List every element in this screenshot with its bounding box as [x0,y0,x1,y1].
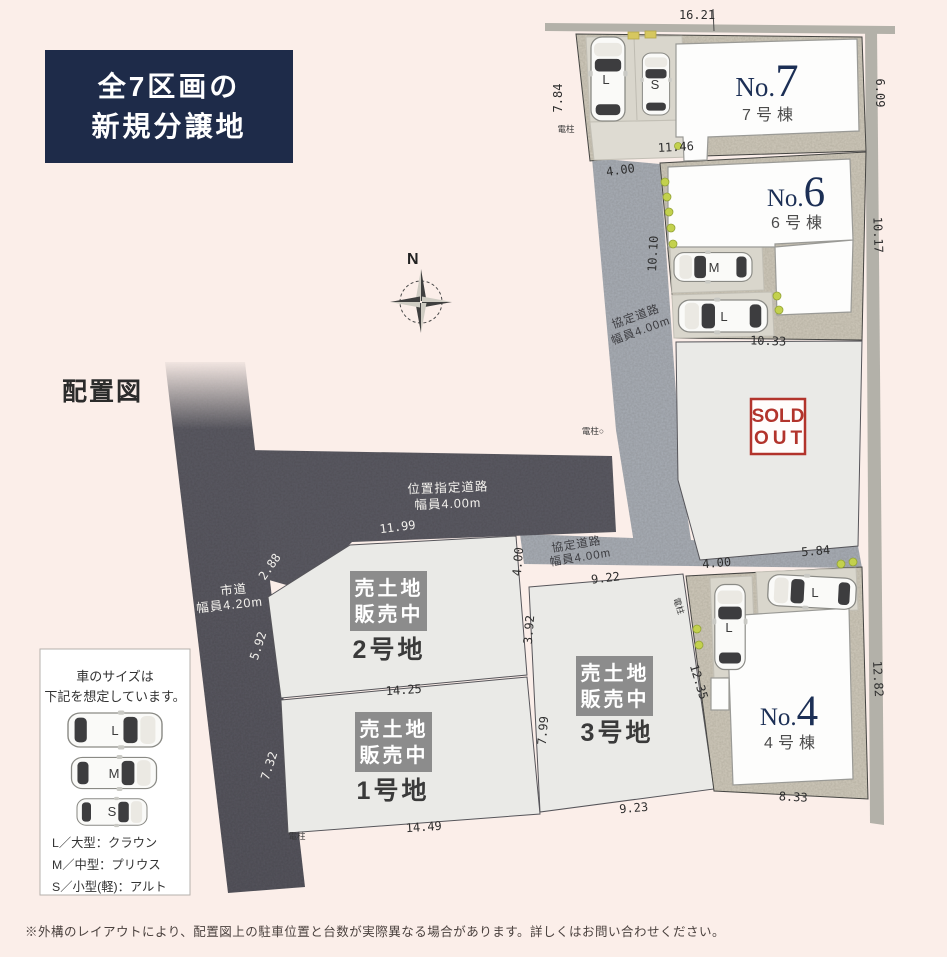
dim-14-25: 14.25 [385,682,422,698]
legend-car-s-label: S [108,804,117,819]
dim-9-23: 9.23 [619,800,649,816]
dim-16-21: 16.21 [679,8,715,22]
lot3-badge-line1: 売土地 [581,662,650,685]
road-ichishitei-name: 位置指定道路 [407,479,488,497]
dim-3-92: 3.92 [521,615,537,645]
pole-center: 電柱○ [582,426,604,436]
disclaimer-text: ※外構のレイアウトにより、配置図上の駐車位置と台数が実際異なる場合があります。詳… [25,921,725,940]
title-line2: 新規分譲地 [45,107,293,147]
building-4 [727,608,853,785]
sold-out-line1: SOLD [752,406,805,427]
dim-7-99: 7.99 [535,716,551,746]
title-banner: 全7区画の 新規分譲地 [45,50,293,163]
road-ichishitei-width: 幅員4.00m [414,495,481,512]
house-no4-name: 4号棟 [764,734,820,752]
dim-4-00-lot2: 4.00 [510,547,526,577]
house-no6-name: 6号棟 [771,214,827,232]
lot2-label: 2号地 [353,636,426,664]
car-label: L [725,620,732,635]
legend-row-l: L／大型：クラウン [52,836,157,850]
lot2-badge-line2: 販売中 [355,602,424,626]
dim-11-46: 11.46 [657,139,694,155]
car-label: S [651,77,660,92]
car-size-legend: 車のサイズは 下記を想定しています。 L M S L／大型：クラウン M／中型：… [40,649,190,895]
dim-4-00-sold: 4.00 [702,555,732,571]
compass: N [390,251,452,333]
pole-lot7: 電柱 [557,124,575,134]
dim-5-84: 5.84 [801,543,831,559]
dim-14-49: 14.49 [405,819,442,835]
dim-12-82: 12.82 [870,660,886,697]
lot3-badge-line2: 販売中 [581,687,650,711]
legend-header-line2: 下記を想定しています。 [44,689,185,704]
car-label: L [811,585,818,600]
compass-north-label: N [407,251,419,268]
sold-out-line2: OUT [754,428,806,449]
legend-row-m: M／中型：プリウス [52,857,161,872]
sold-out-badge: SOLD OUT [751,399,806,454]
dim-7-84: 7.84 [551,84,565,113]
site-plan-page: L S M L L L No.7 7号棟 No.6 6号棟 No.4 4号棟 S… [0,0,947,957]
title-line1: 全7区画の [45,67,293,107]
house-no7-name: 7号棟 [742,106,798,124]
car-label: L [720,309,727,324]
car-label: M [709,260,720,275]
dim-10-17: 10.17 [870,217,885,254]
dim-10-10: 10.10 [645,235,661,272]
car-label: L [602,72,609,87]
plan-caption: 配置図 [62,372,143,408]
legend-car-m-label: M [109,766,120,781]
lot1-label: 1号地 [357,777,430,805]
lot1-badge-line2: 販売中 [360,743,429,767]
building-4-porch [711,678,729,710]
pole-road: 電柱 [288,831,306,841]
dim-6-09: 6.09 [873,79,887,108]
legend-header-line1: 車のサイズは [76,669,154,684]
legend-car-l-label: L [111,723,118,738]
lot2-badge-line1: 売土地 [355,577,424,600]
dim-8-33: 8.33 [778,789,808,804]
lot3-label: 3号地 [581,719,654,747]
lot1-badge-line1: 売土地 [360,718,429,741]
dim-10-33: 10.33 [750,333,787,348]
legend-row-s: S／小型(軽)：アルト [52,880,167,894]
